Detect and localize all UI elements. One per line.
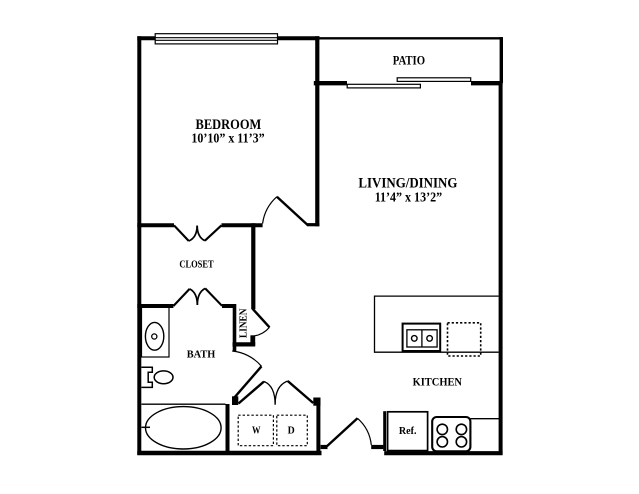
svg-text:CLOSET: CLOSET <box>179 259 213 271</box>
svg-text:PATIO: PATIO <box>393 53 426 67</box>
svg-text:10’10” x 11’3”: 10’10” x 11’3” <box>191 131 264 146</box>
svg-text:Ref.: Ref. <box>399 425 417 437</box>
svg-text:LINEN: LINEN <box>238 309 250 338</box>
svg-text:11’4” x 13’2”: 11’4” x 13’2” <box>375 190 443 205</box>
svg-text:KITCHEN: KITCHEN <box>413 376 463 389</box>
svg-text:D: D <box>288 425 295 437</box>
svg-text:BATH: BATH <box>187 349 216 361</box>
svg-text:W: W <box>252 425 261 437</box>
